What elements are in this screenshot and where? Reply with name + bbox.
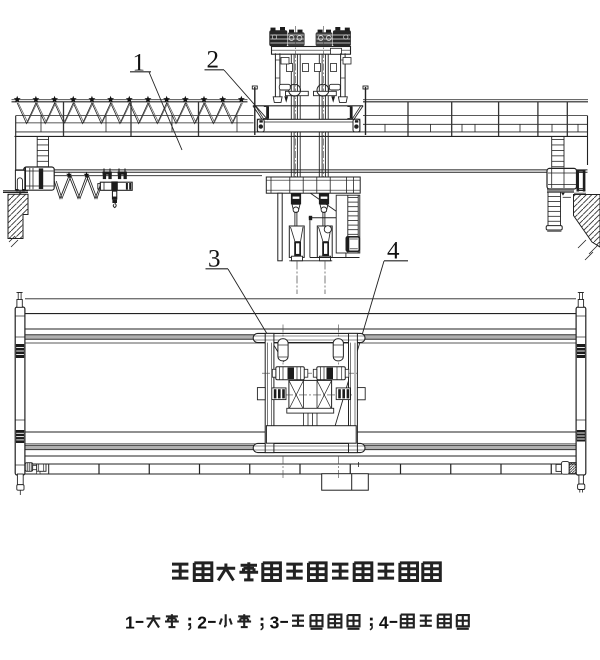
svg-text:1: 1 xyxy=(125,612,135,632)
svg-text:1: 1 xyxy=(133,50,146,77)
svg-text:4: 4 xyxy=(379,612,389,632)
svg-text:3: 3 xyxy=(270,612,280,632)
svg-text:2: 2 xyxy=(197,612,207,632)
